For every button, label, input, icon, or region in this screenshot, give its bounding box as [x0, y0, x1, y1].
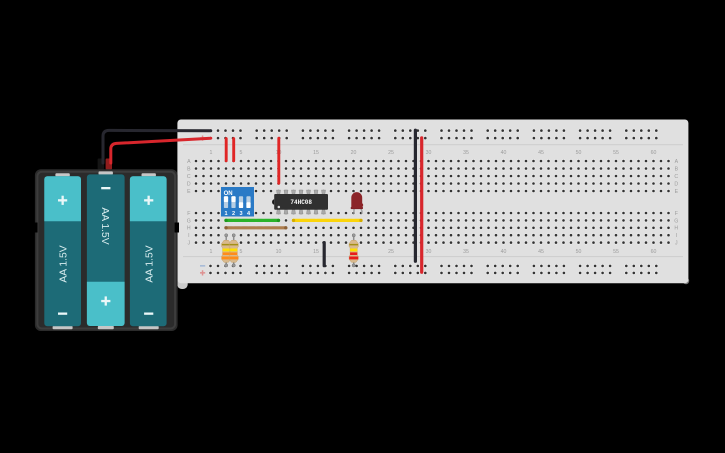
svg-text:25: 25 [388, 249, 394, 255]
svg-text:A: A [187, 159, 191, 165]
svg-text:5: 5 [240, 150, 243, 156]
svg-text:40: 40 [501, 249, 507, 255]
svg-text:2: 2 [232, 211, 235, 217]
svg-text:AA 1.5V: AA 1.5V [99, 207, 110, 244]
svg-text:45: 45 [538, 249, 544, 255]
svg-text:1: 1 [210, 150, 213, 156]
svg-text:3: 3 [239, 211, 242, 217]
svg-text:G: G [674, 218, 678, 224]
svg-text:AA 1.5V: AA 1.5V [58, 245, 69, 282]
svg-text:30: 30 [426, 249, 432, 255]
svg-text:J: J [675, 241, 678, 247]
svg-text:E: E [187, 189, 191, 195]
svg-text:G: G [187, 218, 191, 224]
svg-text:J: J [188, 241, 191, 247]
svg-text:A: A [675, 159, 679, 165]
svg-text:5: 5 [240, 249, 243, 255]
svg-text:50: 50 [576, 150, 582, 156]
svg-text:AA 1.5V: AA 1.5V [144, 245, 155, 282]
svg-text:15: 15 [313, 249, 319, 255]
svg-text:45: 45 [538, 150, 544, 156]
svg-text:I: I [676, 233, 677, 239]
svg-text:30: 30 [426, 150, 432, 156]
svg-text:74HC08: 74HC08 [290, 199, 312, 206]
svg-text:F: F [675, 211, 678, 217]
svg-text:25: 25 [388, 150, 394, 156]
svg-text:H: H [674, 226, 678, 232]
svg-text:50: 50 [576, 249, 582, 255]
svg-text:F: F [187, 211, 190, 217]
svg-text:35: 35 [463, 249, 469, 255]
svg-text:20: 20 [351, 150, 357, 156]
svg-text:55: 55 [613, 249, 619, 255]
svg-text:60: 60 [651, 150, 657, 156]
svg-text:15: 15 [313, 150, 319, 156]
svg-text:1: 1 [210, 249, 213, 255]
svg-text:10: 10 [276, 249, 282, 255]
svg-text:D: D [674, 181, 678, 187]
svg-text:E: E [675, 189, 679, 195]
svg-text:35: 35 [463, 150, 469, 156]
svg-text:D: D [187, 181, 191, 187]
svg-text:40: 40 [501, 150, 507, 156]
svg-text:55: 55 [613, 150, 619, 156]
svg-text:B: B [187, 166, 191, 172]
svg-text:C: C [674, 174, 678, 180]
svg-text:H: H [187, 226, 191, 232]
svg-text:60: 60 [651, 249, 657, 255]
svg-text:1: 1 [224, 211, 227, 217]
svg-text:ON: ON [224, 191, 233, 197]
svg-text:C: C [187, 174, 191, 180]
svg-text:B: B [675, 166, 679, 172]
svg-text:I: I [188, 233, 189, 239]
